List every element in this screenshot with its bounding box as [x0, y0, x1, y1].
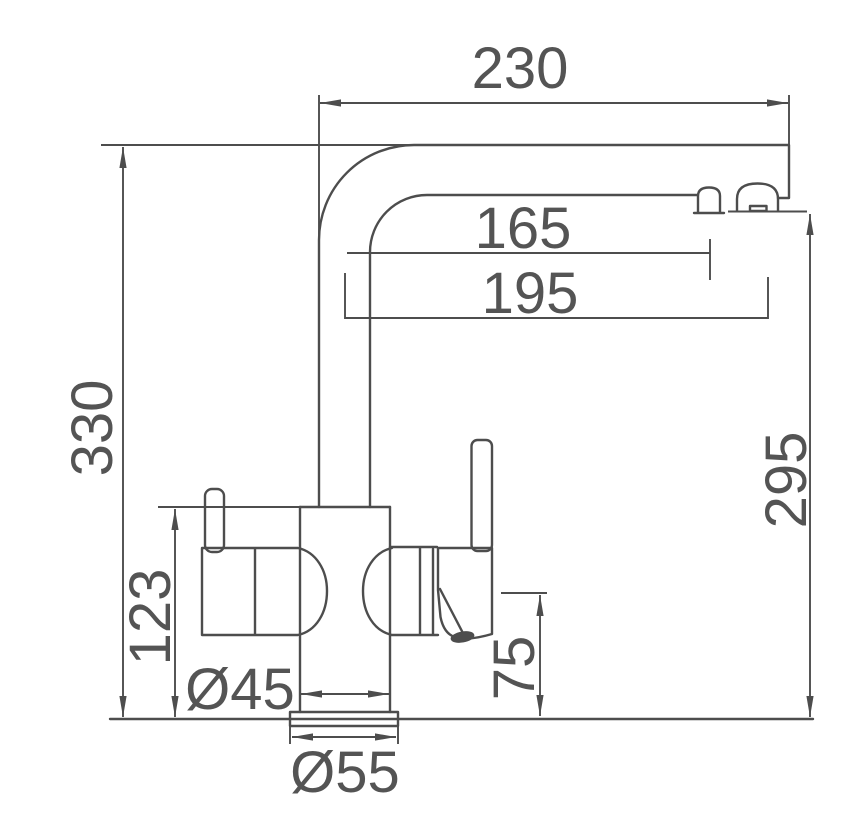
arrowhead-45-left	[301, 690, 322, 697]
technical-drawing-canvas: 230 165 195 330 123	[0, 0, 868, 814]
aerator-small-dome	[694, 188, 724, 214]
dimension-aerator-offset: 165	[347, 196, 710, 261]
dim-label-overall-height: 330	[60, 380, 125, 477]
aerator-outlet	[750, 206, 767, 211]
dim-label-base-diameter: Ø55	[290, 740, 400, 805]
arrowhead-330-top	[119, 147, 126, 168]
arrowhead-230-right	[767, 99, 788, 106]
dim-label-body-height: 123	[118, 569, 183, 666]
arrowhead-45-right	[368, 690, 389, 697]
handle-lever	[472, 440, 493, 551]
dimension-spout-tip-offset: 195	[345, 261, 768, 326]
dimension-spout-reach: 230	[320, 36, 788, 107]
handle-pivot-line	[440, 589, 465, 637]
arrowhead-230-left	[320, 99, 341, 106]
dim-label-aerator-offset: 165	[475, 196, 572, 261]
faucet-dimension-drawing: 230 165 195 330 123	[0, 0, 868, 814]
left-valve-body	[202, 548, 327, 635]
dimension-outlet-height: 295	[754, 214, 819, 717]
dimension-overall-height: 330	[60, 147, 127, 717]
extension-lines	[101, 95, 807, 744]
dim-label-handle-base-height: 75	[482, 636, 547, 701]
dim-label-spout-reach: 230	[472, 36, 569, 101]
arrowhead-295-bottom	[806, 696, 813, 717]
handle-pivot-cap	[450, 630, 474, 644]
handle-body	[438, 548, 492, 639]
faucet-outline	[110, 145, 813, 726]
dim-label-spout-tip-offset: 195	[482, 261, 579, 326]
arrowhead-330-bottom	[119, 696, 126, 717]
dim-label-outlet-height: 295	[754, 432, 819, 529]
right-valve-body	[363, 547, 438, 635]
dim-label-body-diameter: Ø45	[185, 657, 295, 722]
central-column	[300, 507, 390, 712]
arrowhead-295-top	[806, 214, 813, 235]
dimension-base-diameter: Ø55	[290, 733, 400, 805]
left-valve-lever	[205, 489, 224, 552]
arrowhead-75-top	[536, 595, 543, 616]
arrowhead-123-bottom	[171, 696, 178, 717]
arrowhead-123-top	[171, 509, 178, 530]
dimension-body-height: 123	[118, 509, 183, 717]
